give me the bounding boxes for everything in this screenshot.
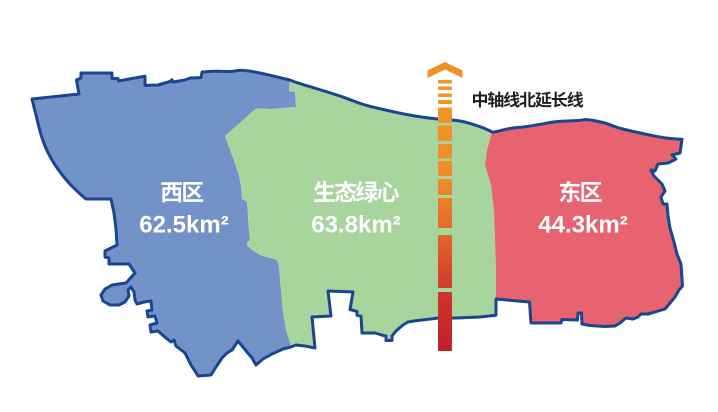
svg-text:62.5km²: 62.5km² — [139, 212, 228, 239]
svg-text:44.3km²: 44.3km² — [538, 212, 627, 239]
svg-text:63.8km²: 63.8km² — [311, 212, 400, 239]
